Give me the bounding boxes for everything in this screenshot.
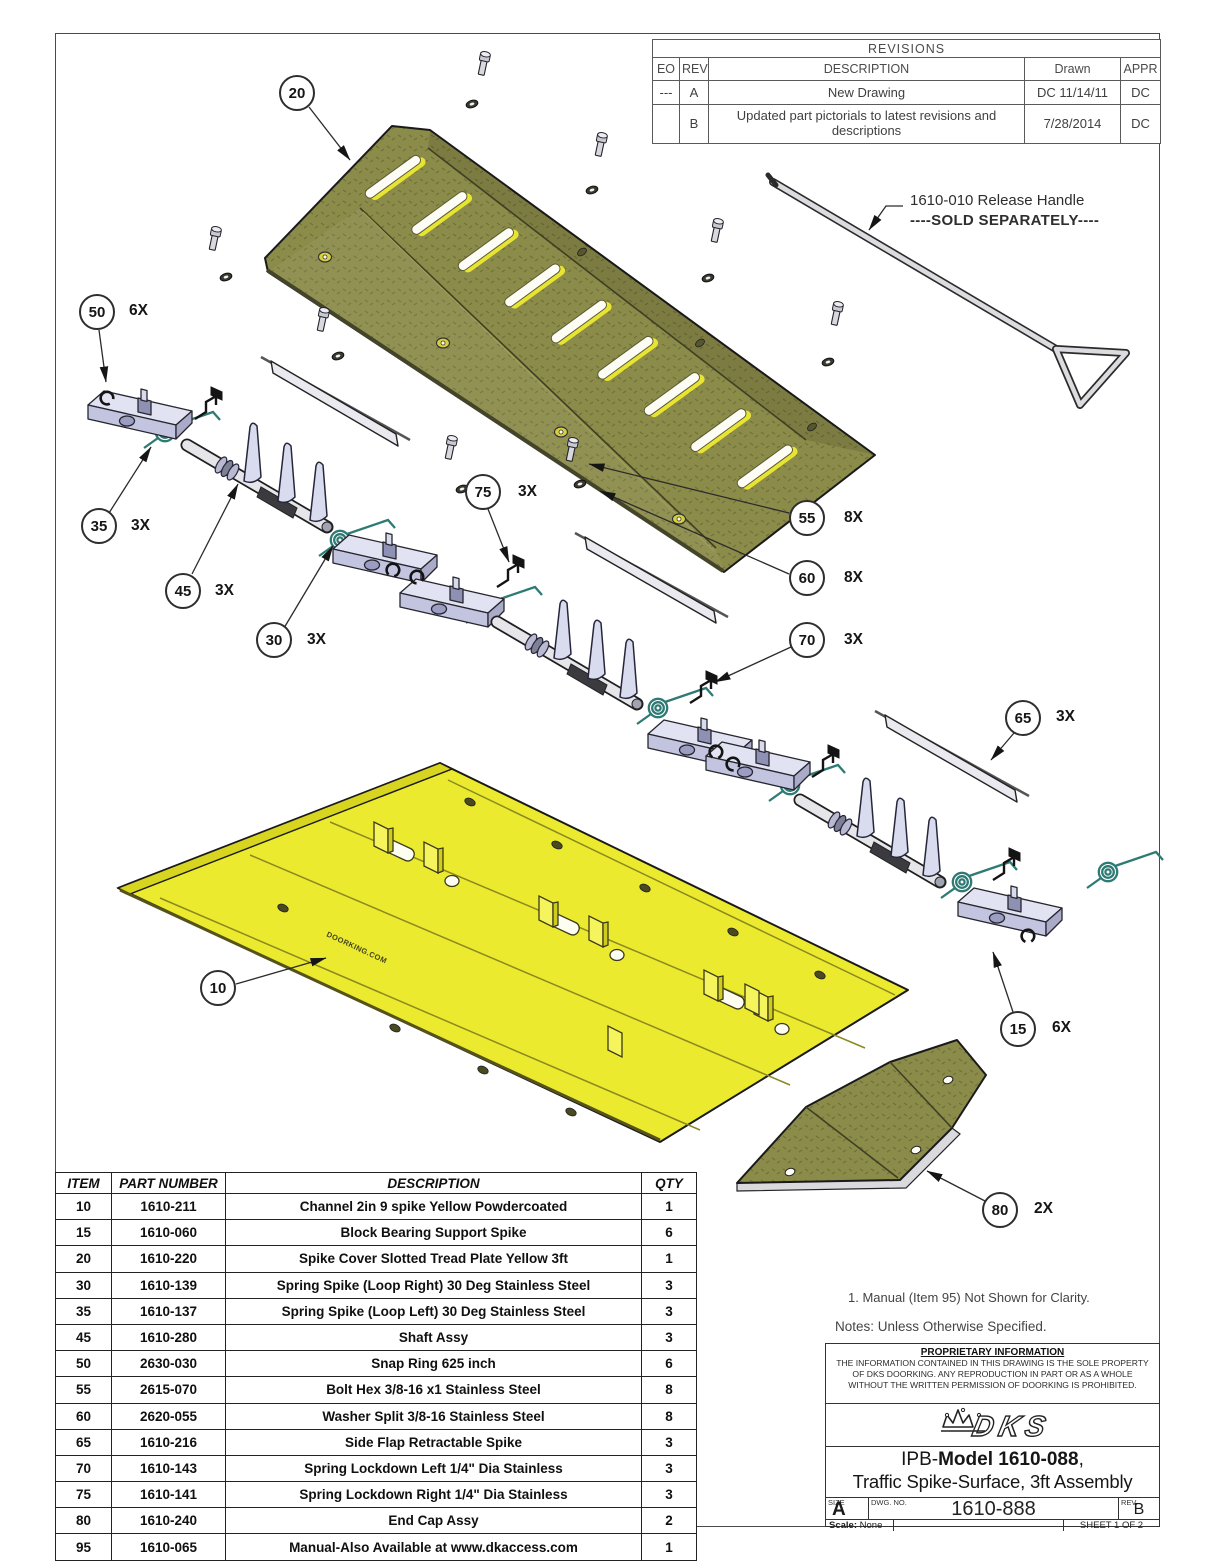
title-block: PROPRIETARY INFORMATION THE INFORMATION … <box>825 1343 1160 1527</box>
callout-qty-65: 3X <box>1056 708 1075 726</box>
proprietary-title: PROPRIETARY INFORMATION <box>826 1347 1159 1358</box>
callout-balloon-80: 80 <box>982 1192 1018 1228</box>
callout-qty-45: 3X <box>215 582 234 600</box>
proprietary-line-3: WITHOUT THE WRITTEN PERMISSION OF DOORKI… <box>826 1380 1159 1391</box>
rev-a-appr: DC <box>1121 81 1161 105</box>
drawing-title: IPB-Model 1610-088, Traffic Spike-Surfac… <box>826 1449 1159 1498</box>
callout-qty-80: 2X <box>1034 1200 1053 1218</box>
proprietary-line-1: THE INFORMATION CONTAINED IN THIS DRAWIN… <box>826 1358 1159 1369</box>
dks-logo: DKS <box>927 1407 1059 1443</box>
revisions-title: REVISIONS <box>653 40 1161 58</box>
dwg-no-label: DWG. NO. <box>871 1498 907 1507</box>
dks-logo-text: DKS <box>969 1410 1048 1443</box>
rev-a-rev: A <box>680 81 709 105</box>
rev-col-description: DESCRIPTION <box>709 58 1025 81</box>
parts-col-item: ITEM <box>56 1173 112 1194</box>
proprietary-line-2: OF DKS DOORKING. ANY REPRODUCTION IN PAR… <box>826 1369 1159 1380</box>
table-row: 101610-211Channel 2in 9 spike Yellow Pow… <box>56 1194 697 1220</box>
callout-qty-60: 8X <box>844 569 863 587</box>
yellow-channel-10: DOORKING.COM <box>118 763 908 1142</box>
callout-balloon-65: 65 <box>1005 700 1041 736</box>
callout-qty-15: 6X <box>1052 1019 1071 1037</box>
rev-b-description: Updated part pictorials to latest revisi… <box>709 105 1025 144</box>
table-row: 201610-220Spike Cover Slotted Tread Plat… <box>56 1246 697 1272</box>
tread-plate-20 <box>265 126 875 572</box>
callout-qty-75: 3X <box>518 483 537 501</box>
title-block-info-row: SIZE A DWG. NO. 1610-888 REV. B <box>826 1498 1159 1520</box>
revision-row-a: --- A New Drawing DC 11/14/11 DC <box>653 81 1161 105</box>
table-row: 751610-141Spring Lockdown Right 1/4" Dia… <box>56 1482 697 1508</box>
title-block-scale-row: Scale: None SHEET 1 OF 2 <box>826 1520 1159 1531</box>
callout-qty-50: 6X <box>129 302 148 320</box>
table-row: 602620-055Washer Split 3/8-16 Stainless … <box>56 1403 697 1429</box>
release-handle-sold-separately: ----SOLD SEPARATELY---- <box>910 211 1099 231</box>
parts-header-row: ITEM PART NUMBER DESCRIPTION QTY <box>56 1173 697 1194</box>
dks-logo-box: DKS <box>826 1404 1159 1447</box>
rev-col-eo: EO <box>653 58 680 81</box>
table-row: 451610-280Shaft Assy3 <box>56 1324 697 1350</box>
callout-balloon-35: 35 <box>81 508 117 544</box>
size-value: A <box>832 1499 846 1521</box>
rev-col-rev: REV <box>680 58 709 81</box>
table-row: 701610-143Spring Lockdown Left 1/4" Dia … <box>56 1455 697 1481</box>
callout-qty-70: 3X <box>844 631 863 649</box>
parts-list-table: ITEM PART NUMBER DESCRIPTION QTY 101610-… <box>55 1172 697 1561</box>
drawing-title-line1: IPB-Model 1610-088, <box>826 1449 1159 1471</box>
revisions-title-row: REVISIONS <box>653 40 1161 58</box>
callout-qty-35: 3X <box>131 517 150 535</box>
revisions-header-row: EO REV DESCRIPTION Drawn APPR <box>653 58 1161 81</box>
callout-qty-55: 8X <box>844 509 863 527</box>
drawing-title-line2: Traffic Spike-Surface, 3ft Assembly <box>826 1471 1159 1493</box>
rev-b-drawn: 7/28/2014 <box>1025 105 1121 144</box>
table-row: 801610-240End Cap Assy2 <box>56 1508 697 1534</box>
size-cell: SIZE A <box>826 1498 869 1519</box>
scale-spacer-cell <box>894 1520 1064 1531</box>
callout-qty-30: 3X <box>307 631 326 649</box>
callout-balloon-55: 55 <box>789 500 825 536</box>
callout-balloon-15: 15 <box>1000 1011 1036 1047</box>
callout-balloon-10: 10 <box>200 970 236 1006</box>
rev-b-appr: DC <box>1121 105 1161 144</box>
notes-heading: Notes: Unless Otherwise Specified. <box>835 1319 1047 1334</box>
callout-balloon-75: 75 <box>465 474 501 510</box>
revisions-table: REVISIONS EO REV DESCRIPTION Drawn APPR … <box>652 39 1161 144</box>
callout-balloon-70: 70 <box>789 622 825 658</box>
release-handle-part-number: 1610-010 Release Handle <box>910 191 1099 211</box>
rev-a-eo: --- <box>653 81 680 105</box>
drawing-page: DOORKING.COM <box>0 0 1214 1563</box>
revision-row-b: B Updated part pictorials to latest revi… <box>653 105 1161 144</box>
rev-col-appr: APPR <box>1121 58 1161 81</box>
callout-balloon-30: 30 <box>256 622 292 658</box>
proprietary-info-box: PROPRIETARY INFORMATION THE INFORMATION … <box>826 1347 1159 1404</box>
dwg-no-cell: DWG. NO. 1610-888 <box>869 1498 1119 1519</box>
rev-a-drawn: DC 11/14/11 <box>1025 81 1121 105</box>
table-row: 951610-065Manual-Also Available at www.d… <box>56 1534 697 1560</box>
table-row: 552615-070Bolt Hex 3/8-16 x1 Stainless S… <box>56 1377 697 1403</box>
callout-balloon-20: 20 <box>279 75 315 111</box>
table-row: 651610-216Side Flap Retractable Spike3 <box>56 1429 697 1455</box>
callout-balloon-45: 45 <box>165 573 201 609</box>
rev-label: REV. <box>1121 1498 1138 1507</box>
callout-balloon-50: 50 <box>79 294 115 330</box>
rev-a-description: New Drawing <box>709 81 1025 105</box>
table-row: 351610-137Spring Spike (Loop Left) 30 De… <box>56 1298 697 1324</box>
parts-col-qty: QTY <box>642 1173 697 1194</box>
rev-cell: REV. B <box>1119 1498 1159 1519</box>
table-row: 502630-030Snap Ring 625 inch6 <box>56 1351 697 1377</box>
parts-col-part-number: PART NUMBER <box>112 1173 226 1194</box>
rev-b-eo <box>653 105 680 144</box>
parts-col-description: DESCRIPTION <box>226 1173 642 1194</box>
callout-balloon-60: 60 <box>789 560 825 596</box>
scale-cell: Scale: None <box>826 1520 894 1531</box>
table-row: 151610-060Block Bearing Support Spike6 <box>56 1220 697 1246</box>
rev-col-drawn: Drawn <box>1025 58 1121 81</box>
table-row: 301610-139Spring Spike (Loop Right) 30 D… <box>56 1272 697 1298</box>
rev-b-rev: B <box>680 105 709 144</box>
note-manual-not-shown: 1. Manual (Item 95) Not Shown for Clarit… <box>848 1290 1090 1305</box>
release-handle-label: 1610-010 Release Handle ----SOLD SEPARAT… <box>910 191 1099 232</box>
